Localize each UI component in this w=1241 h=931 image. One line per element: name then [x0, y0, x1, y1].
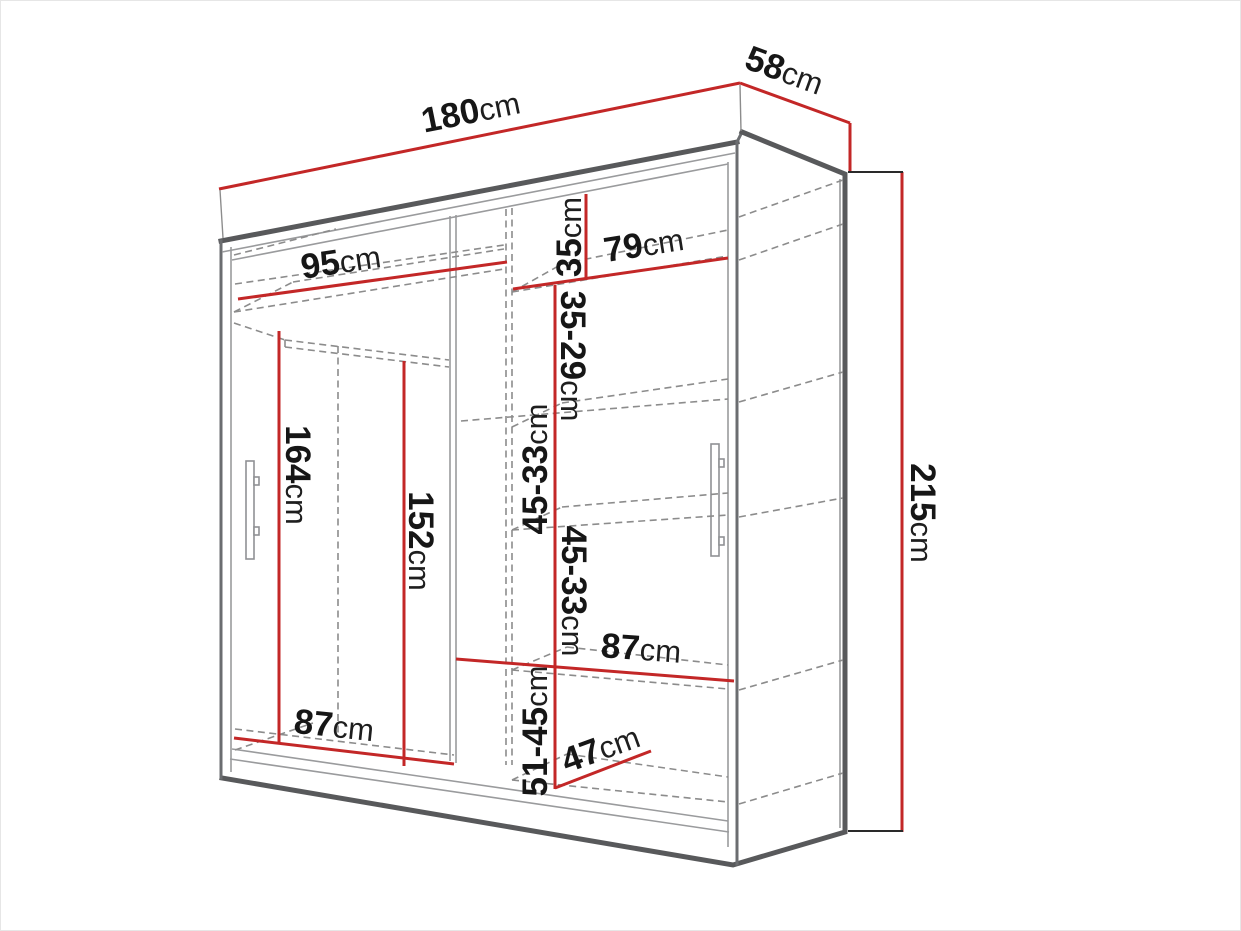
dimension-annotations: 180cm 58cm 215cm 95cm 79cm 35cm: [219, 39, 942, 832]
dim-shelf-gap-45-33-upper: 45-33cm: [516, 404, 555, 535]
dim-label-152: 152cm: [401, 491, 440, 591]
dim-label-35: 35cm: [550, 197, 589, 277]
dim-label-180: 180cm: [418, 82, 524, 140]
dim-shelf-gap-45-33-lower: 45-33cm: [554, 526, 593, 669]
dim-bottom-gap-51-45: 51-45cm: [516, 666, 555, 797]
dim-tick-180-right: [740, 85, 741, 131]
dim-label-51-45: 51-45cm: [516, 666, 555, 797]
dim-right-section-width: 79cm: [513, 219, 728, 289]
right-handle-mount-top: [719, 459, 724, 467]
side-panel-shelf-a-line: [739, 224, 843, 260]
wardrobe-dimension-diagram: 180cm 58cm 215cm 95cm 79cm 35cm: [0, 0, 1241, 931]
dim-bottom-right-width: 87cm: [456, 626, 734, 681]
shelf-b-front-edge: [461, 399, 728, 421]
dim-label-58: 58cm: [740, 39, 829, 103]
dim-left-hanging-height: 164cm: [278, 331, 317, 743]
side-panel-floor-line: [739, 773, 843, 804]
dim-label-45-33-lower: 45-33cm: [554, 526, 593, 657]
dim-label-45-33-upper: 45-33cm: [516, 404, 555, 535]
diagram-canvas: 180cm 58cm 215cm 95cm 79cm 35cm: [1, 1, 1241, 931]
right-handle-bar: [711, 444, 719, 556]
interior-floor-edge: [232, 749, 728, 821]
dim-top-shelf-gap: 35cm: [550, 194, 589, 280]
dim-shelf-gap-35-29: 35-29cm: [553, 285, 592, 422]
left-handle-bar: [246, 461, 254, 559]
dim-right-hanging-height: 152cm: [401, 361, 440, 766]
left-handle-mount-top: [254, 477, 259, 485]
dim-label-164: 164cm: [278, 425, 317, 525]
hanging-rod-wall-bracket: [234, 323, 285, 340]
dim-label-215: 215cm: [903, 463, 942, 563]
dim-tick-180-left: [220, 190, 223, 238]
left-handle-mount-bottom: [254, 527, 259, 535]
side-panel-shelf-d-line: [739, 660, 843, 690]
dim-label-87-right: 87cm: [600, 626, 683, 671]
dim-label-95: 95cm: [298, 236, 383, 286]
dim-overall-height: 215cm: [848, 172, 942, 832]
dim-label-79: 79cm: [601, 219, 686, 270]
side-panel-shelf-c-line: [739, 498, 843, 517]
dim-label-35-29: 35-29cm: [553, 291, 592, 422]
right-handle-mount-bottom: [719, 537, 724, 545]
dim-label-87-left: 87cm: [292, 702, 376, 749]
side-panel-shelf-b-line: [739, 372, 843, 402]
left-door-handle: [246, 461, 259, 559]
dim-overall-width: 180cm: [219, 82, 741, 238]
shelf-c-back-edge: [562, 493, 728, 507]
dim-bottom-depth-47: 47cm: [555, 717, 651, 788]
right-door-handle: [711, 444, 724, 556]
side-panel-top-depth-line: [739, 180, 843, 217]
